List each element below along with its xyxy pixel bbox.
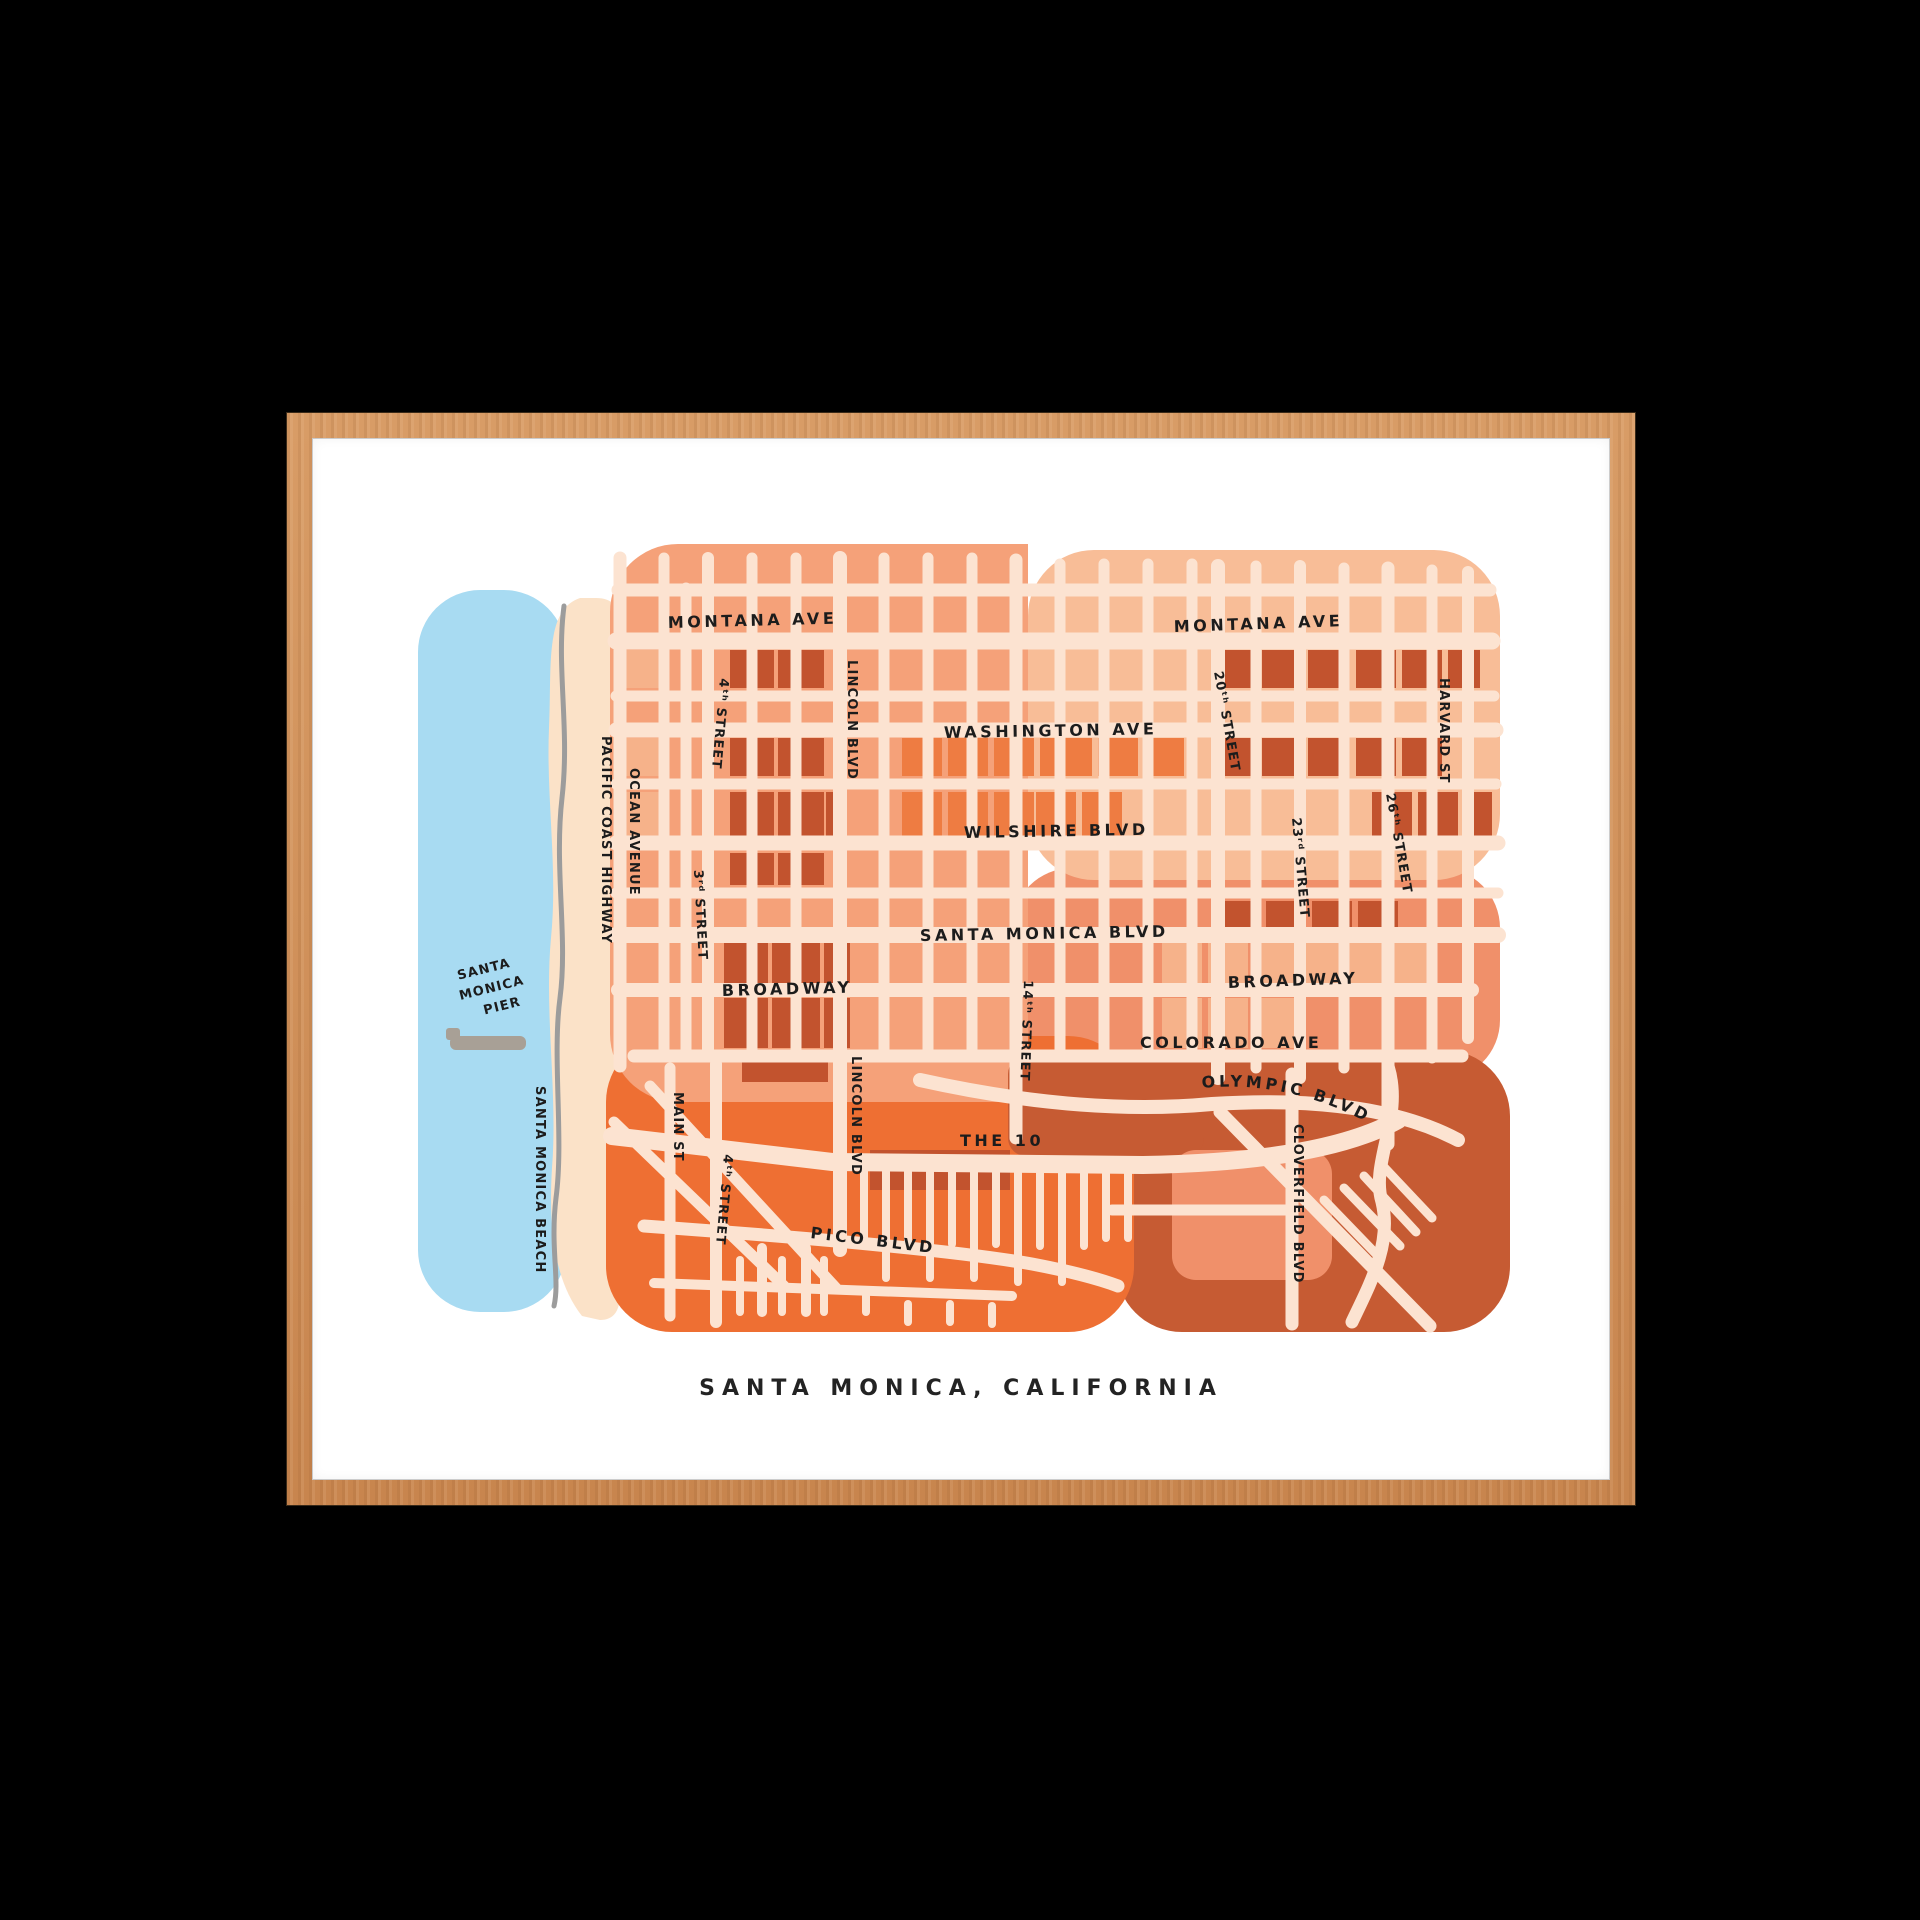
street-label-cloverfield-blvd: CLOVERFIELD BLVD: [1290, 1124, 1305, 1284]
street-label-washington-ave: WASHINGTON AVE: [944, 719, 1158, 742]
santa-monica-map-artwork: MONTANA AVE MONTANA AVE WASHINGTON AVE W…: [312, 438, 1610, 1480]
street-label-harvard-st: HARVARD ST: [1436, 678, 1451, 784]
street-label-broadway-west: BROADWAY: [722, 978, 853, 1000]
street-label-main-st: MAIN ST: [670, 1092, 685, 1162]
street-label-the-10: THE 10: [960, 1131, 1044, 1150]
street-label-wilshire-blvd: WILSHIRE BLVD: [964, 820, 1149, 842]
black-backdrop: MONTANA AVE MONTANA AVE WASHINGTON AVE W…: [0, 0, 1920, 1920]
art-print: MONTANA AVE MONTANA AVE WASHINGTON AVE W…: [312, 438, 1610, 1480]
print-caption: SANTA MONICA, CALIFORNIA: [312, 1376, 1610, 1401]
street-label-ocean-avenue: OCEAN AVENUE: [626, 768, 641, 896]
street-label-pacific-coast-highway: PACIFIC COAST HIGHWAY: [598, 736, 613, 944]
street-label-lincoln-blvd-north: LINCOLN BLVD: [844, 660, 859, 780]
label-santa-monica-beach: SANTA MONICA BEACH: [532, 1086, 547, 1273]
street-label-lincoln-blvd-south: LINCOLN BLVD: [848, 1056, 863, 1176]
street-label-colorado-ave: COLORADO AVE: [1140, 1033, 1322, 1052]
picture-frame: MONTANA AVE MONTANA AVE WASHINGTON AVE W…: [287, 413, 1635, 1505]
